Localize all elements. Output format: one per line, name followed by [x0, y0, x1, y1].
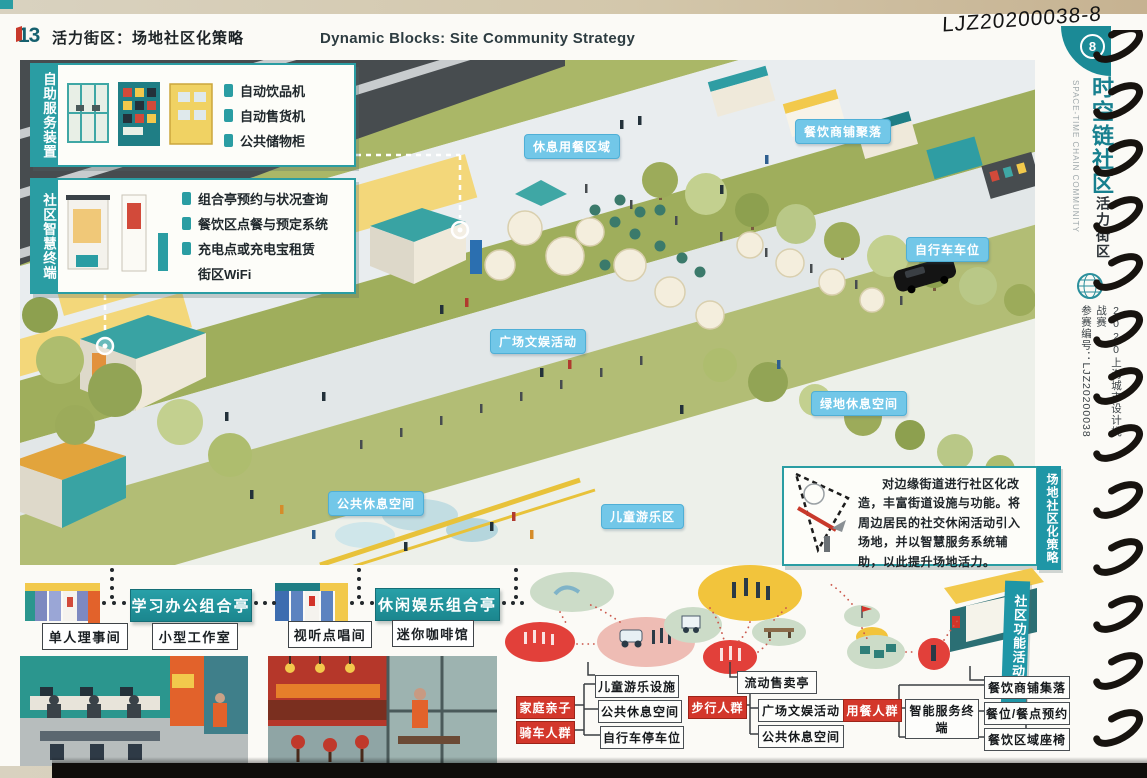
- target-mobile-vendor: 流动售卖亭: [737, 671, 817, 694]
- vending-machines-icon: [66, 80, 216, 150]
- corner-registration-mark: [0, 0, 13, 9]
- map-label-bike-parking: 自行车车位: [906, 237, 989, 262]
- callout-title: 社区智慧终端: [32, 180, 58, 292]
- actor-cyclists: 骑车人群: [516, 721, 575, 744]
- callout-item: 餐饮区点餐与预定系统: [198, 214, 328, 233]
- terminal-kiosks-icon: [66, 193, 174, 279]
- map-label-green-rest-space: 绿地休息空间: [811, 391, 907, 416]
- photographed-design-board: { "header": { "number": "13", "title_cn"…: [0, 0, 1147, 778]
- target-dining-seats: 餐饮区域座椅: [984, 728, 1070, 751]
- bullet-icon: [182, 192, 191, 205]
- kiosk-thumbnail-leisure: [275, 583, 348, 623]
- room-label-small-studio: 小型工作室: [152, 623, 238, 650]
- target-bike-parking: 自行车停车位: [600, 726, 684, 749]
- target-restaurant-cluster: 餐饮商铺集落: [984, 676, 1070, 699]
- callout-item: 街区WiFi: [198, 264, 251, 283]
- via-smart-terminal: 智能服务终端: [905, 699, 979, 739]
- callout-smart-terminals: 社区智慧终端 组合亭预约与状况查询 餐饮区点餐与预定系统 充电点或充电宝租赁 街…: [30, 178, 356, 294]
- target-public-rest-2: 公共休息空间: [758, 725, 844, 748]
- bullet-icon: [224, 134, 233, 147]
- kiosk-thumbnail-study: [25, 583, 100, 623]
- bullet-icon: [182, 217, 191, 230]
- map-label-kids-play-area: 儿童游乐区: [601, 504, 684, 529]
- target-kids-facilities: 儿童游乐设施: [595, 675, 679, 698]
- room-label-karaoke: 视听点唱间: [288, 621, 372, 648]
- section-number-accent: [16, 26, 22, 42]
- photo-office-interior: [20, 656, 248, 766]
- bullet-icon: [182, 242, 191, 255]
- room-label-single-office: 单人理事间: [42, 623, 128, 650]
- actor-diners: 用餐人群: [843, 699, 902, 722]
- bullet-icon: [224, 109, 233, 122]
- actor-pedestrians: 步行人群: [688, 696, 747, 719]
- table-edge: [52, 763, 1147, 778]
- map-label-public-rest-space: 公共休息空间: [328, 491, 424, 516]
- target-plaza-events: 广场文娱活动: [758, 699, 844, 722]
- map-label-restaurant-cluster: 餐饮商铺聚落: [795, 119, 891, 144]
- callout-item: 充电点或充电宝租赁: [198, 239, 315, 258]
- strategy-side-label: 场地社区化策略: [1037, 466, 1061, 570]
- spiral-binding: [1090, 30, 1147, 770]
- target-reservation: 餐位/餐点预约: [984, 702, 1070, 725]
- page-title: 活力街区：场地社区化策略: [52, 27, 244, 48]
- room-label-mini-cafe: 迷你咖啡馆: [392, 620, 474, 647]
- callout-self-service-devices: 自助服务装置 自动饮品机 自动售货机 公共储物柜: [30, 63, 356, 167]
- strategy-mini-map: [784, 468, 856, 564]
- callout-item: 公共储物柜: [240, 131, 305, 150]
- page-title-en: Dynamic Blocks: Site Community Strategy: [320, 30, 635, 47]
- actor-family: 家庭亲子: [516, 696, 575, 719]
- map-label-dining-rest-area: 休息用餐区域: [524, 134, 620, 159]
- series-title-en: SPACE-TIME CHAIN COMMUNITY: [1071, 80, 1080, 240]
- section-number: 13: [18, 24, 39, 48]
- callout-item: 组合亭预约与状况查询: [198, 189, 328, 208]
- callout-item: 自动售货机: [240, 106, 305, 125]
- strategy-note-box: 对边缘街道进行社区化改造，丰富街道设施与功能。将周边居民的社交休闲活动引入场地，…: [782, 466, 1038, 566]
- strategy-text: 对边缘街道进行社区化改造，丰富街道设施与功能。将周边居民的社交休闲活动引入场地，…: [856, 468, 1036, 564]
- photo-cafe-interior: [268, 656, 497, 766]
- group-title-leisure: 休闲娱乐组合亭: [375, 588, 500, 621]
- callout-title: 自助服务装置: [32, 65, 58, 165]
- map-label-plaza-events: 广场文娱活动: [490, 329, 586, 354]
- callout-item: 自动饮品机: [240, 81, 305, 100]
- target-public-rest: 公共休息空间: [598, 700, 682, 723]
- bullet-icon: [224, 84, 233, 97]
- group-title-study-office: 学习办公组合亭: [130, 589, 252, 622]
